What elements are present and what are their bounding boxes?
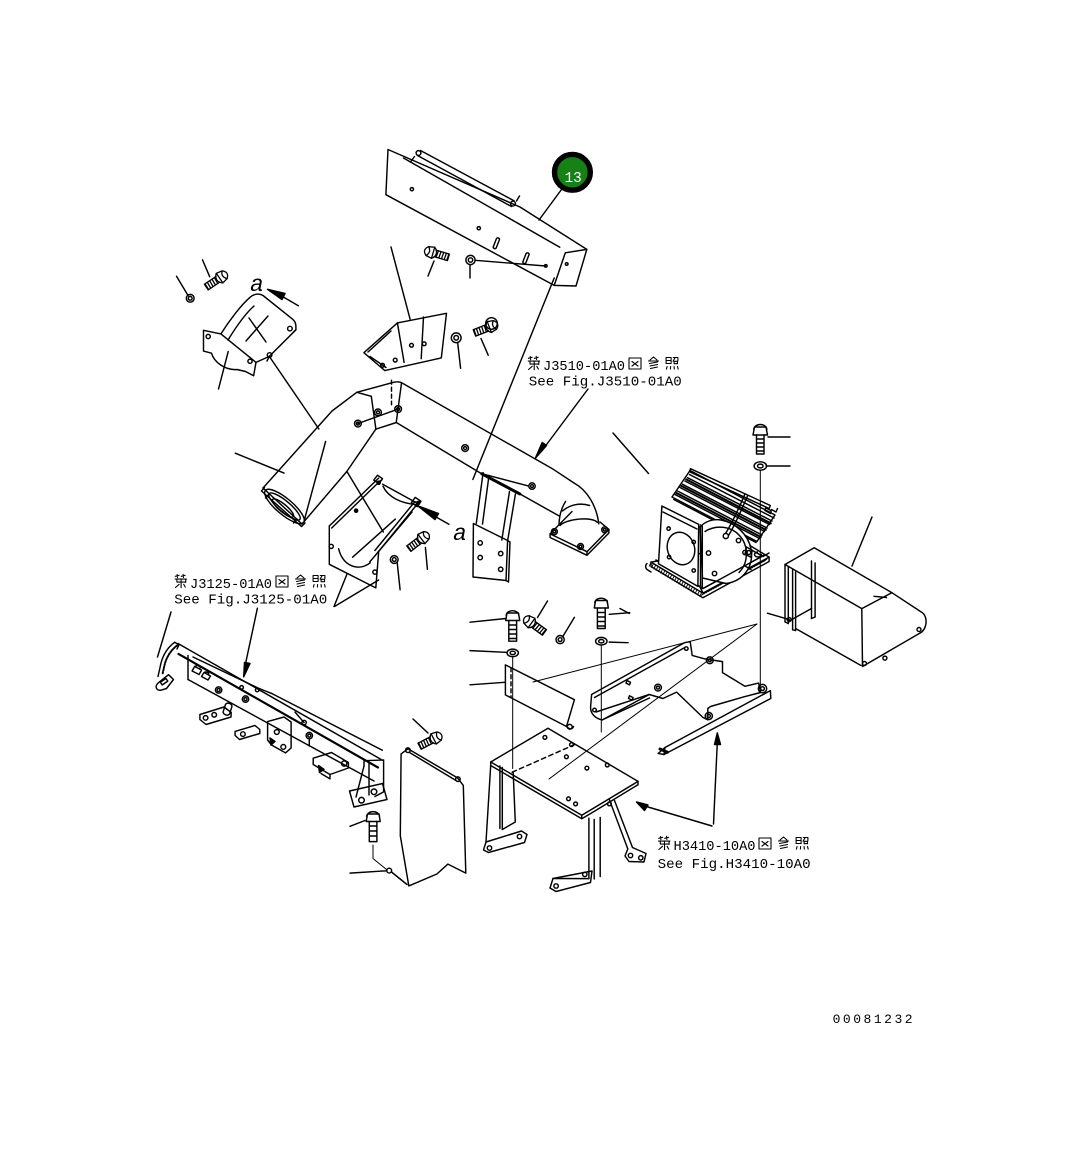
svg-text:See Fig.J3510-01A0: See Fig.J3510-01A0 bbox=[529, 376, 682, 391]
svg-text:J3510-01A0: J3510-01A0 bbox=[543, 360, 625, 375]
svg-text:H3410-10A0: H3410-10A0 bbox=[674, 840, 756, 855]
svg-text:13: 13 bbox=[565, 171, 582, 187]
svg-text:See Fig.J3125-01A0: See Fig.J3125-01A0 bbox=[174, 594, 327, 609]
svg-text:See Fig.H3410-10A0: See Fig.H3410-10A0 bbox=[658, 858, 811, 873]
svg-text:J3125-01A0: J3125-01A0 bbox=[190, 578, 272, 593]
svg-text:a: a bbox=[453, 521, 467, 547]
